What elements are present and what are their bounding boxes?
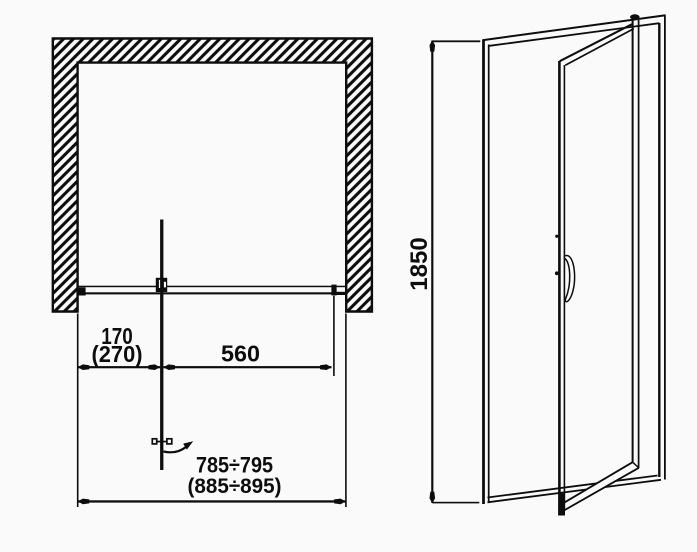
svg-text:1850: 1850 — [406, 237, 433, 290]
svg-text:(270): (270) — [92, 341, 143, 367]
svg-text:(885÷895): (885÷895) — [188, 474, 282, 498]
svg-text:560: 560 — [221, 340, 260, 366]
